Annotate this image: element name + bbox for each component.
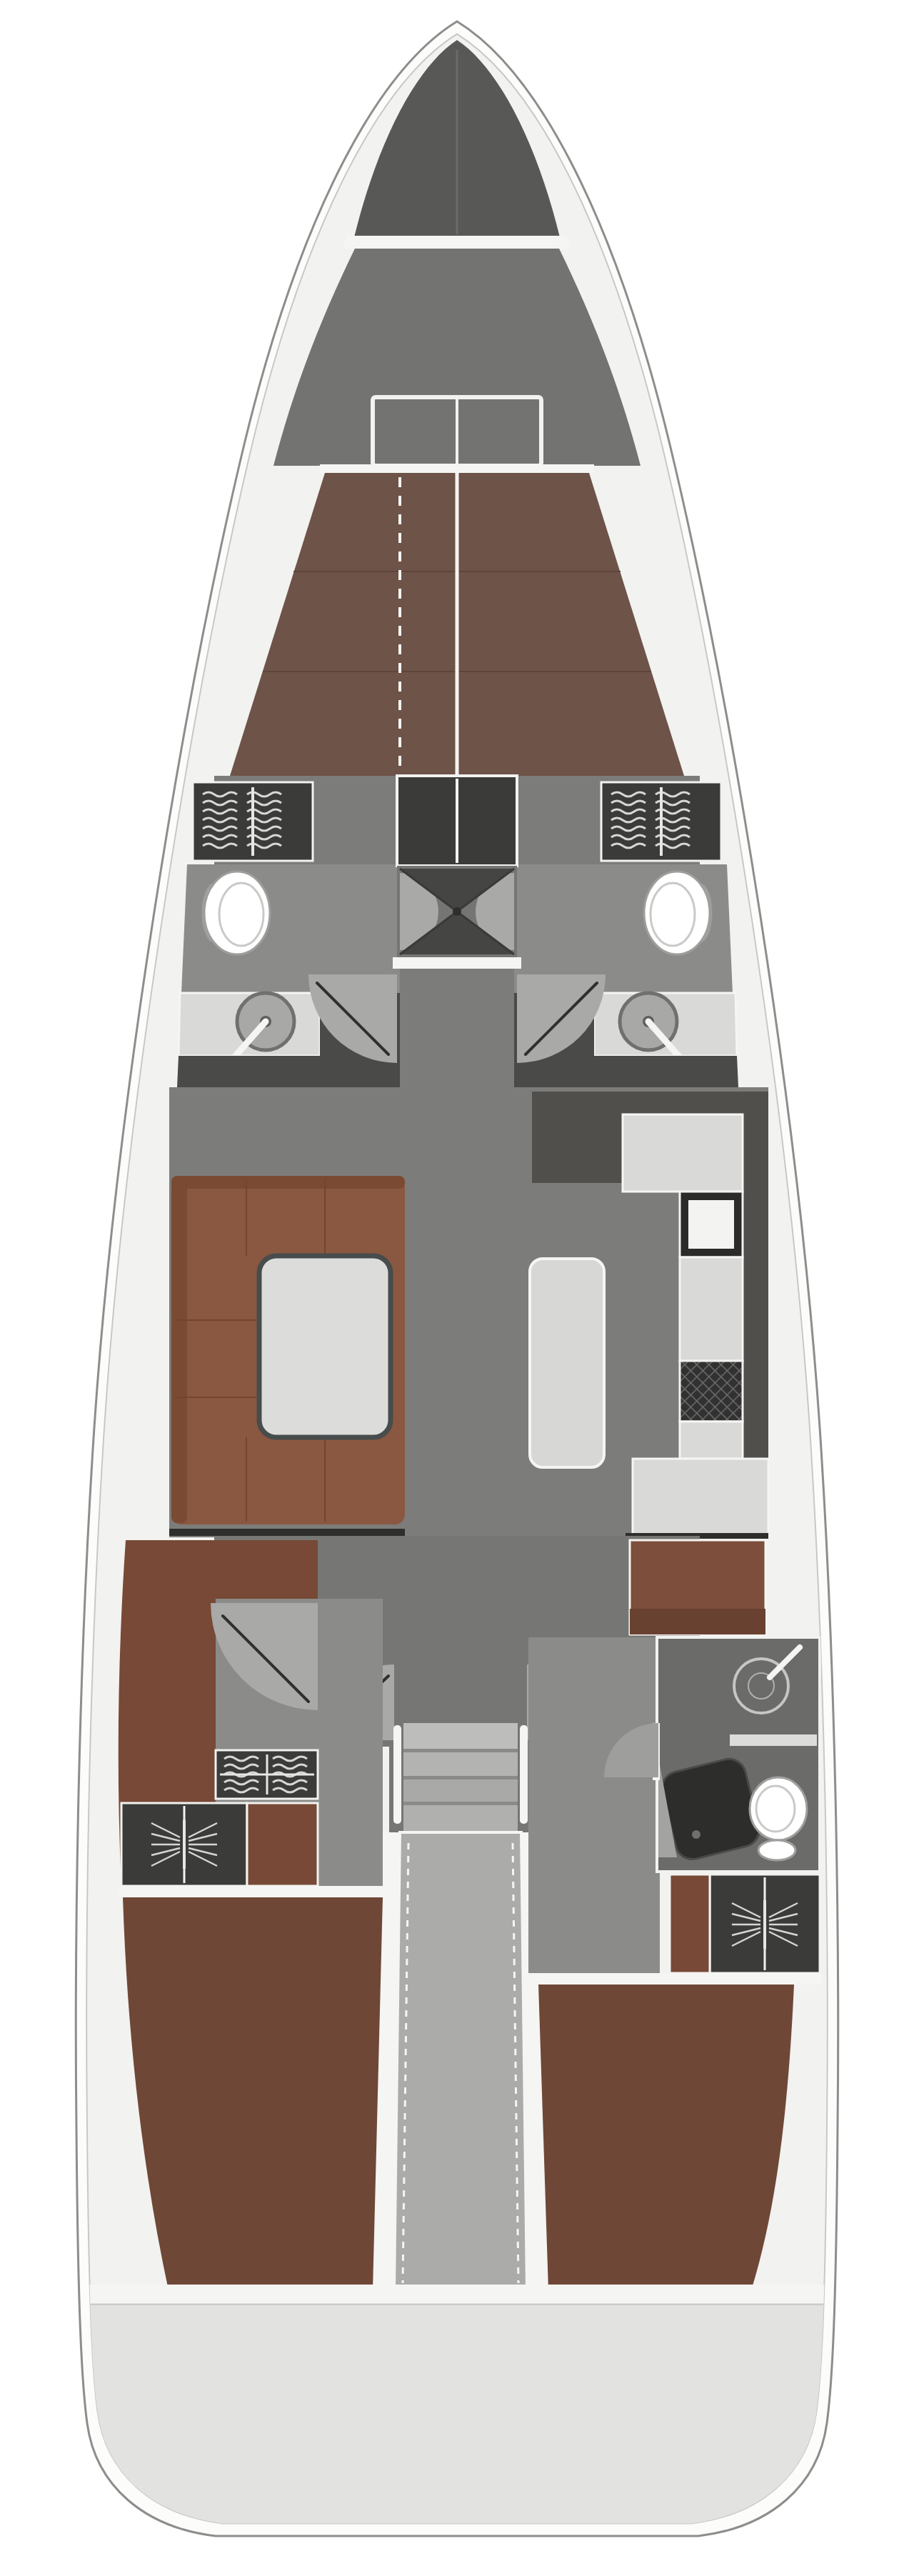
- stair-rail-port: [393, 1725, 401, 1824]
- engine-column: [394, 1832, 527, 2290]
- galley-partition: [532, 1092, 768, 1114]
- shower-drain: [692, 1830, 700, 1839]
- center-bench: [530, 1259, 604, 1467]
- bed-head-trim: [528, 1973, 821, 1985]
- head-lower-wall: [594, 1056, 738, 1087]
- stove-icon: [680, 1361, 743, 1422]
- transom-band: [86, 2285, 828, 2303]
- double-bed: [123, 1897, 383, 2290]
- head-shelf: [730, 1734, 817, 1746]
- yacht-floor-plan: [0, 0, 914, 2576]
- sofa-backrest-side: [171, 1182, 187, 1523]
- wardrobe: [710, 1874, 820, 1973]
- cabin-shelf: [670, 1874, 710, 1973]
- hanging-clothes-icon: [151, 1820, 217, 1869]
- galley-top-counter: [623, 1114, 743, 1192]
- galley-cabinet-block: [532, 1114, 623, 1183]
- galley-mid-counter: [680, 1257, 743, 1361]
- toilet-icon: [203, 872, 270, 954]
- bow-bulkhead-line: [343, 236, 571, 249]
- vestibule-sill: [393, 957, 521, 969]
- vberth-head-trim: [320, 464, 594, 473]
- mast-foot-dot: [453, 907, 461, 916]
- sofa-backrest-top: [171, 1176, 405, 1189]
- hanging-clothes-icon: [732, 1900, 798, 1949]
- louvered-locker-seat: [216, 1750, 318, 1799]
- wardrobe: [121, 1803, 247, 1886]
- galley-end-counter: [633, 1459, 768, 1537]
- stern: [71, 2285, 843, 2546]
- cabin-shelf: [247, 1803, 318, 1886]
- dining-table: [259, 1256, 391, 1437]
- companionway-stairs: [403, 1723, 518, 1832]
- galley-sink: [680, 1192, 743, 1257]
- stair-rail-starboard: [520, 1725, 528, 1824]
- double-bed: [538, 1985, 794, 2290]
- port-bulkhead: [169, 1529, 405, 1536]
- seat-bench-edge: [630, 1609, 765, 1634]
- head-lower-wall: [177, 1056, 320, 1087]
- galley-outboard-wall: [743, 1114, 768, 1497]
- swim-platform: [71, 2303, 843, 2546]
- galley-low-counter: [680, 1422, 743, 1459]
- toilet-icon: [644, 872, 711, 954]
- cabin-floor: [528, 1637, 660, 1980]
- port-aft-cabin: [119, 1540, 384, 2290]
- bed-head-trim: [119, 1886, 384, 1897]
